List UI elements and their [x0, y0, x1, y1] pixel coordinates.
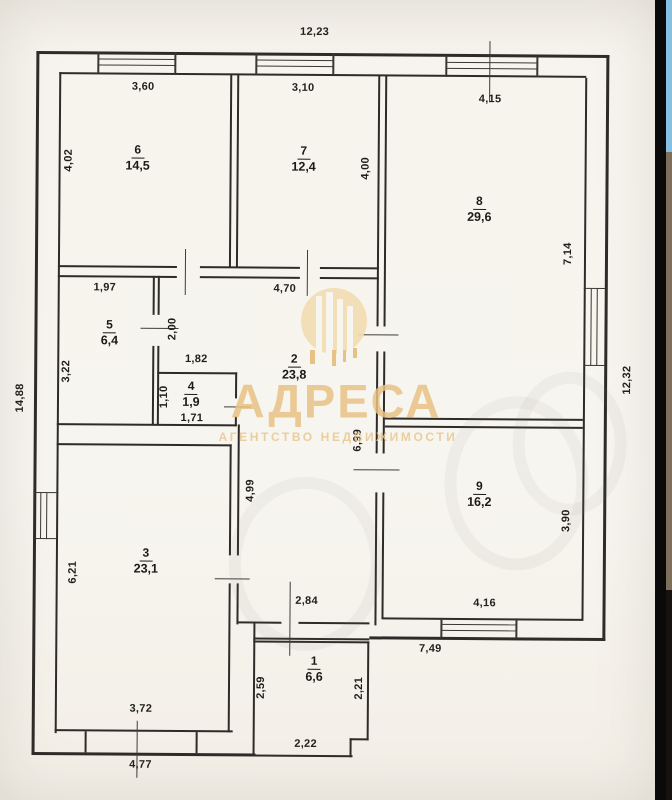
window-line: [596, 289, 598, 366]
wall-line: [320, 277, 379, 279]
dimension-label: 12,23: [300, 26, 329, 38]
dimension-tick: [358, 334, 398, 336]
window-line: [536, 57, 538, 78]
wall-line: [158, 276, 160, 315]
floor-plan-photo[interactable]: 12,233,603,104,154,024,007,1412,3214,881…: [0, 0, 672, 800]
wall-line: [36, 51, 609, 58]
dimension-label: 7,49: [419, 643, 442, 655]
wall-line: [59, 72, 586, 78]
window-line: [46, 493, 48, 539]
dimension-tick: [354, 469, 400, 471]
wall-line: [602, 55, 609, 641]
room-number: 9: [473, 480, 486, 495]
wall-line: [58, 265, 177, 268]
window-line: [441, 630, 516, 632]
dimension-label: 3,90: [560, 509, 572, 532]
room-label-7: 712,4: [291, 142, 316, 175]
window-line: [256, 66, 333, 68]
dimension-label: 6,21: [67, 561, 79, 584]
room-area: 1,9: [182, 395, 199, 409]
wall-line: [376, 351, 379, 453]
window-line: [515, 618, 517, 638]
wall-line: [55, 72, 62, 733]
window-line: [583, 365, 605, 367]
wall-line: [320, 267, 379, 269]
wall-line: [381, 617, 582, 620]
dimension-label: 6,99: [352, 429, 364, 452]
wall-line: [581, 78, 587, 621]
room-area: 12,4: [291, 160, 315, 175]
window-line: [255, 53, 257, 75]
room-label-4: 41,9: [182, 377, 200, 409]
window-line: [97, 51, 99, 73]
wall-line: [85, 731, 87, 752]
dimension-label: 2,59: [255, 676, 267, 699]
dimension-label: 1,71: [181, 412, 204, 424]
wall-line: [367, 641, 370, 740]
next-photo-sliver-section: [666, 0, 672, 152]
wall-line: [57, 443, 232, 446]
wall-line: [57, 423, 237, 426]
dimension-label: 3,22: [60, 360, 72, 383]
room-label-1: 16,6: [305, 652, 323, 684]
wall-line: [153, 276, 155, 315]
room-label-2: 223,8: [282, 350, 307, 383]
dimension-label: 2,84: [295, 595, 318, 607]
room-label-9: 916,2: [467, 477, 492, 510]
plan-layer: 12,233,603,104,154,024,007,1412,3214,881…: [0, 0, 658, 800]
wall-line: [228, 583, 231, 732]
room-label-5: 56,4: [101, 315, 119, 347]
photo-divider-bar: [655, 0, 666, 800]
room-number: 4: [185, 380, 198, 395]
dimension-label: 1,82: [185, 353, 208, 365]
wall-line: [196, 732, 198, 753]
room-number: 7: [297, 145, 310, 160]
wall-line: [369, 636, 605, 641]
wall-line: [55, 729, 233, 732]
dimension-label: 4,15: [479, 93, 502, 105]
room-label-8: 829,6: [467, 192, 492, 225]
room-area: 14,5: [125, 158, 149, 173]
next-photo-sliver-section: [666, 590, 672, 800]
dimension-label: 2,00: [166, 318, 178, 341]
room-label-3: 323,1: [134, 544, 159, 577]
wall-line: [350, 738, 352, 757]
window-line: [33, 538, 56, 540]
wall-line: [235, 372, 237, 398]
dimension-label: 3,10: [292, 82, 315, 94]
wall-line: [152, 346, 155, 425]
window-line: [584, 288, 606, 290]
dimension-label: 4,02: [63, 149, 75, 172]
room-number: 3: [140, 547, 153, 562]
window-line: [332, 53, 334, 75]
window-line: [98, 64, 175, 66]
wall-line: [236, 74, 239, 267]
ghost-watermark-mark: [228, 476, 383, 651]
dimension-label: 12,32: [621, 366, 633, 395]
dimension-label: 3,60: [132, 81, 155, 93]
ghost-watermark-mark: [512, 371, 627, 516]
room-number: 8: [473, 195, 486, 210]
wall-line: [32, 51, 40, 755]
dimension-label: 2,21: [353, 677, 365, 700]
room-number: 6: [131, 143, 144, 158]
window-line: [98, 58, 175, 60]
dimension-tick: [185, 249, 187, 295]
window-line: [590, 289, 592, 366]
room-area: 23,8: [282, 368, 306, 383]
dimension-tick: [224, 406, 251, 408]
dimension-label: 14,88: [14, 383, 26, 412]
room-number: 5: [103, 318, 116, 333]
wall-line: [383, 351, 386, 453]
dimension-label: 3,72: [129, 703, 152, 715]
window-line: [256, 60, 333, 62]
dimension-label: 4,70: [273, 283, 296, 295]
window-line: [446, 62, 537, 64]
window-line: [174, 52, 176, 74]
window-line: [441, 624, 516, 626]
room-label-6: 614,5: [125, 140, 150, 173]
window-line: [445, 56, 447, 77]
room-area: 23,1: [134, 562, 158, 577]
wall-line: [377, 75, 381, 326]
dimension-label: 7,14: [562, 242, 574, 265]
room-area: 16,2: [467, 495, 491, 510]
room-number: 1: [308, 655, 321, 670]
wall-line: [200, 276, 300, 279]
room-number: 2: [288, 353, 301, 368]
wall-line: [253, 755, 353, 758]
wall-line: [32, 752, 256, 757]
dimension-label: 1,10: [158, 386, 170, 409]
window-line: [440, 618, 442, 638]
wall-line: [235, 416, 237, 426]
dimension-tick: [307, 250, 309, 296]
dimension-label: 1,97: [93, 281, 116, 293]
wall-line: [384, 75, 388, 326]
room-area: 29,6: [467, 210, 491, 225]
window-line: [446, 68, 537, 70]
dimension-label: 4,16: [473, 597, 496, 609]
room-area: 6,6: [305, 670, 322, 684]
next-photo-sliver-section: [666, 152, 672, 590]
wall-line: [200, 266, 300, 269]
dimension-label: 2,22: [294, 738, 317, 750]
wall-line: [229, 74, 232, 267]
window-line: [40, 493, 42, 539]
window-line: [33, 492, 56, 494]
dimension-label: 4,77: [129, 759, 152, 771]
dimension-label: 4,99: [244, 479, 256, 502]
dimension-label: 4,00: [360, 157, 372, 180]
wall-line: [157, 372, 237, 374]
wall-line: [350, 738, 369, 740]
room-area: 6,4: [101, 333, 118, 347]
